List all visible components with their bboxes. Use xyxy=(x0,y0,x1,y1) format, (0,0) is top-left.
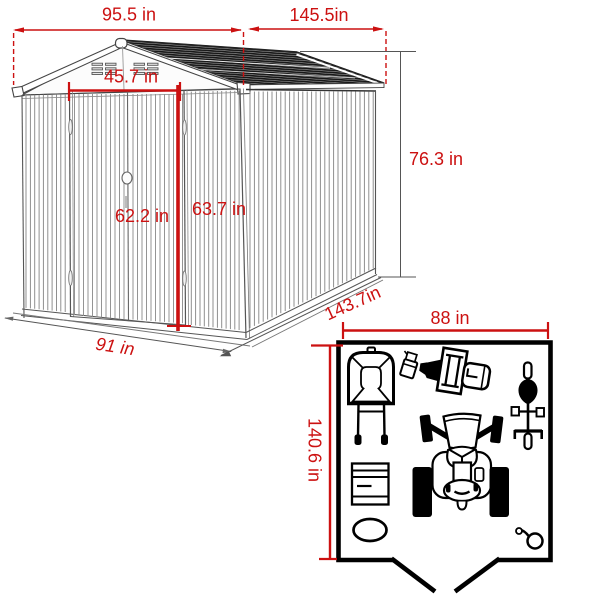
svg-text:45.7 in: 45.7 in xyxy=(104,67,158,87)
svg-text:76.3 in: 76.3 in xyxy=(409,149,463,169)
svg-text:88 in: 88 in xyxy=(430,308,469,328)
svg-text:140.6 in: 140.6 in xyxy=(305,418,325,482)
svg-text:95.5 in: 95.5 in xyxy=(102,5,156,25)
svg-text:63.7 in: 63.7 in xyxy=(192,199,246,219)
svg-text:62.2 in: 62.2 in xyxy=(115,206,169,226)
svg-text:145.5in: 145.5in xyxy=(289,5,348,25)
